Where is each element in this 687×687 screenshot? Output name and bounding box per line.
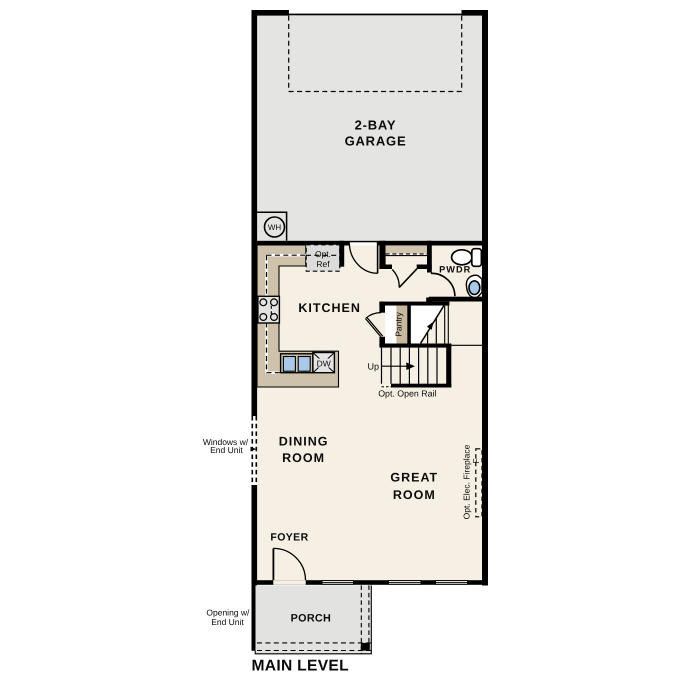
- svg-text:PORCH: PORCH: [291, 613, 332, 625]
- svg-text:KITCHEN: KITCHEN: [298, 301, 361, 315]
- svg-text:MAIN LEVEL: MAIN LEVEL: [252, 657, 350, 674]
- svg-text:GREAT: GREAT: [390, 471, 438, 485]
- svg-text:PWDR: PWDR: [439, 265, 471, 275]
- svg-text:End Unit: End Unit: [210, 445, 243, 455]
- svg-text:2-BAY: 2-BAY: [355, 117, 397, 132]
- svg-text:Opt. Open Rail: Opt. Open Rail: [378, 388, 436, 398]
- svg-text:Ref: Ref: [316, 259, 330, 269]
- svg-text:GARAGE: GARAGE: [345, 134, 407, 149]
- svg-text:Opt. Elec. Fireplace: Opt. Elec. Fireplace: [461, 444, 471, 519]
- svg-text:DW: DW: [317, 358, 331, 368]
- svg-text:ROOM: ROOM: [393, 488, 436, 502]
- svg-text:ROOM: ROOM: [282, 451, 325, 465]
- svg-text:WH: WH: [268, 223, 282, 232]
- svg-text:DINING: DINING: [279, 435, 329, 449]
- svg-text:Up: Up: [368, 361, 380, 371]
- svg-text:Pantry: Pantry: [394, 311, 404, 336]
- svg-text:FOYER: FOYER: [270, 532, 308, 544]
- svg-text:End Unit: End Unit: [211, 617, 244, 627]
- svg-text:Opt.: Opt.: [315, 249, 331, 259]
- svg-text:F: F: [471, 458, 481, 463]
- svg-text:Opening w/: Opening w/: [206, 608, 250, 618]
